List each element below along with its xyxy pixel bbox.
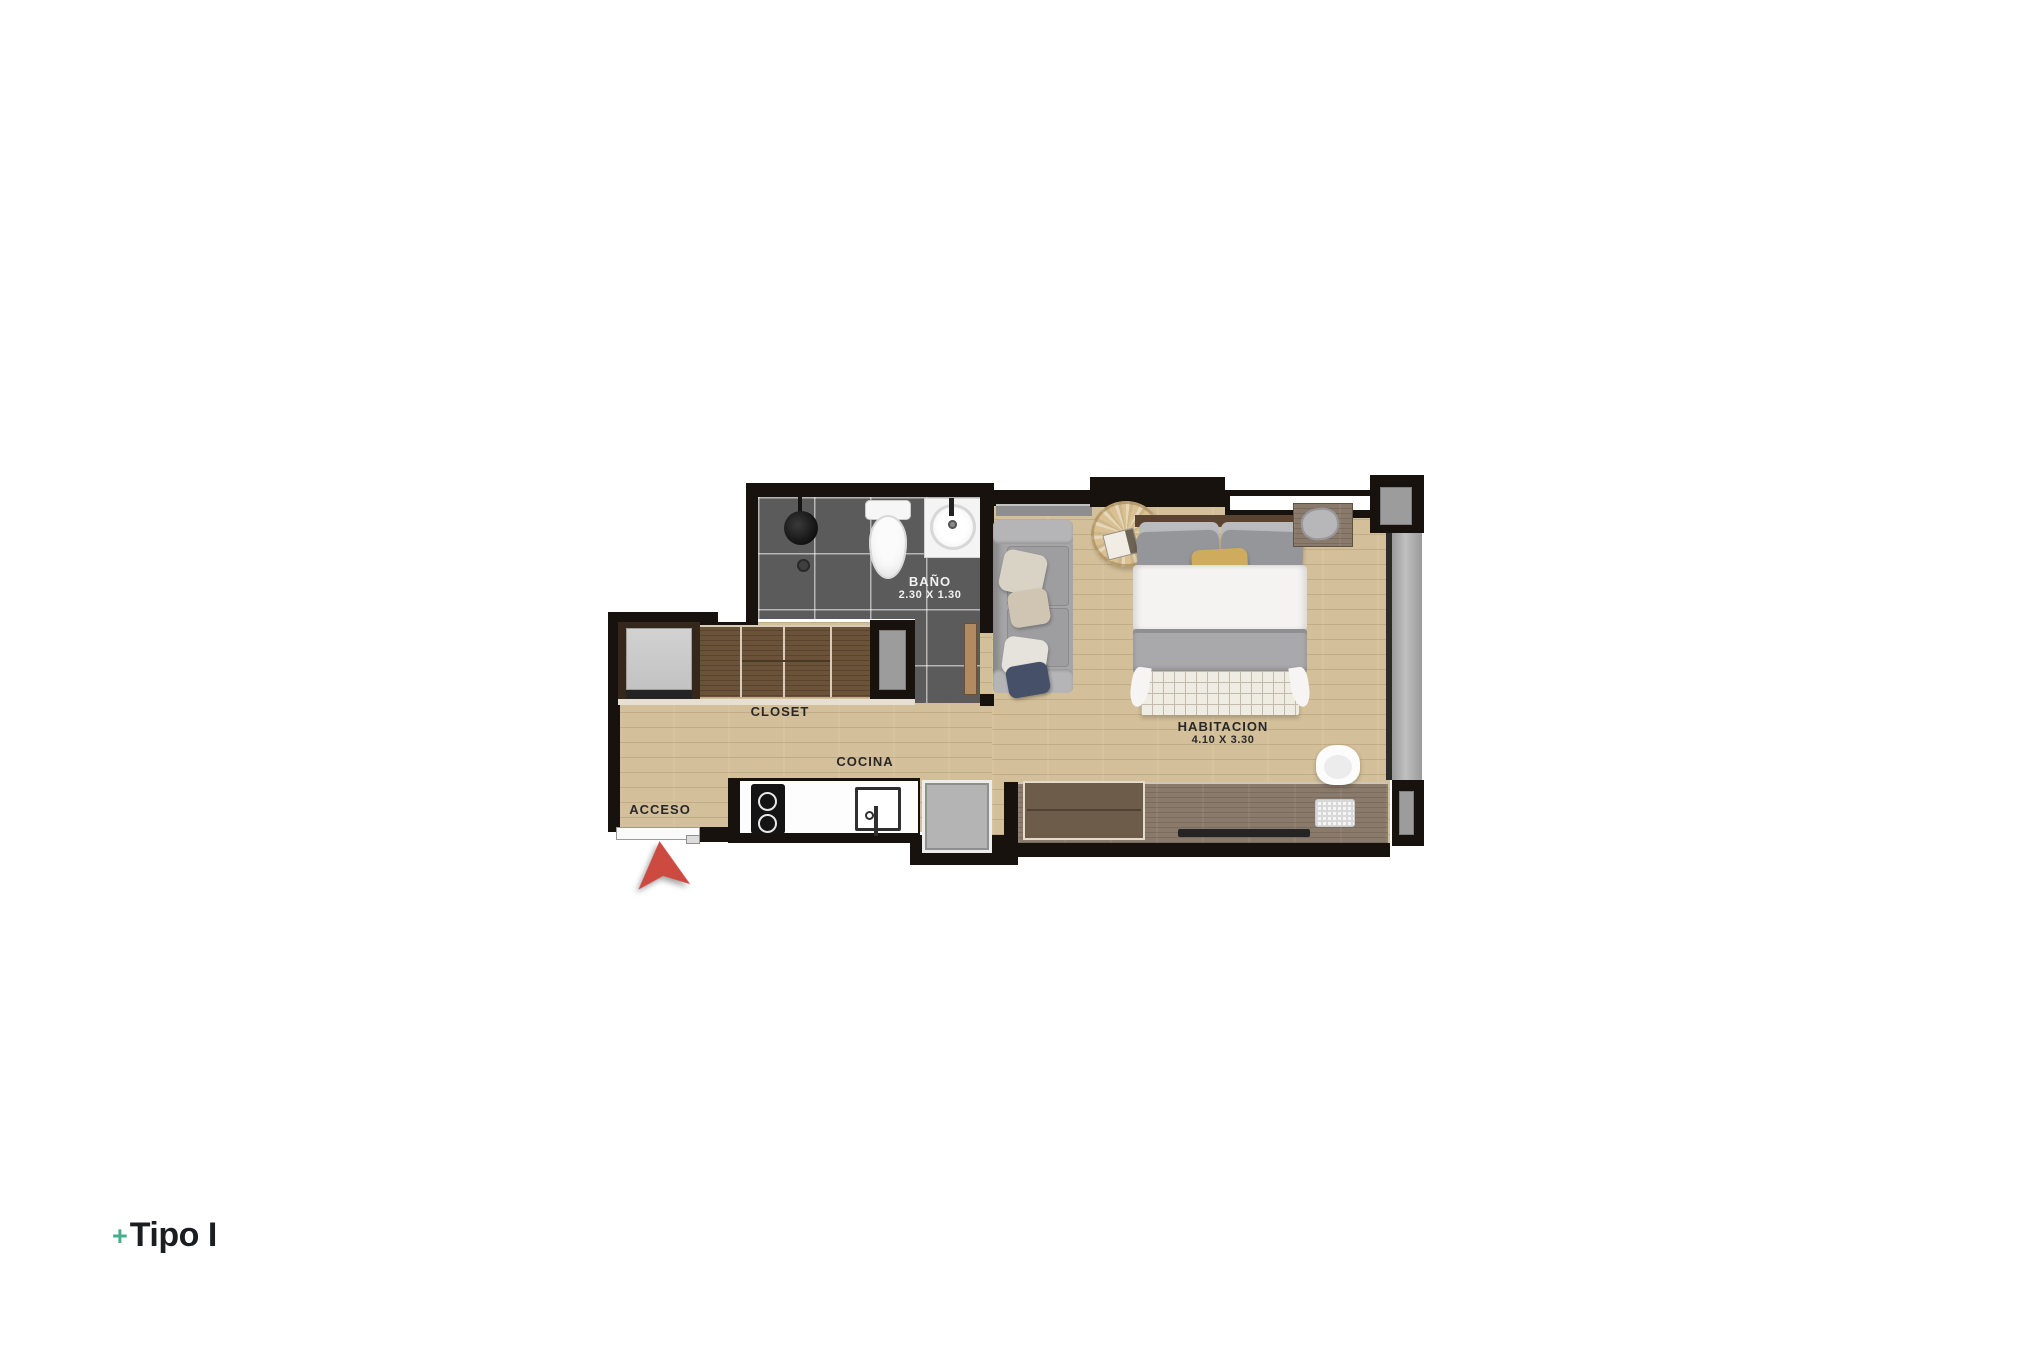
kitchen-name: COCINA <box>836 754 893 769</box>
window-right-glass <box>1392 533 1422 780</box>
window-top-left <box>996 504 1092 516</box>
bathroom-faucet-knob <box>948 520 957 529</box>
floor-plan: BAÑO 2.30 X 1.30 CLOSET COCINA ACCESO HA… <box>608 475 1424 890</box>
entry-arrow-icon <box>634 838 691 891</box>
washer-panel <box>626 690 692 699</box>
access-label: ACCESO <box>610 803 710 817</box>
wall-top-bump <box>1090 477 1225 507</box>
closet-label: CLOSET <box>730 705 830 719</box>
dishwasher <box>922 780 992 853</box>
bathroom-dim: 2.30 X 1.30 <box>870 589 990 601</box>
plus-icon: + <box>112 1221 128 1252</box>
bedroom-dim: 4.10 X 3.30 <box>1153 734 1293 746</box>
kitchen-faucet <box>874 806 878 836</box>
sofa <box>993 520 1073 693</box>
entry-door-handle <box>686 835 700 844</box>
closet-column-inset <box>879 630 906 690</box>
corner-top-right-inset <box>1380 487 1412 525</box>
shower-head <box>784 511 818 545</box>
blanket-fold <box>1133 629 1307 673</box>
kitchen-sink <box>855 787 901 831</box>
shower-drain <box>797 559 810 572</box>
bed <box>1133 515 1307 697</box>
bathroom-door-leaf <box>964 623 977 695</box>
closet-shelf-line <box>742 660 830 662</box>
corner-bottom-right-inset <box>1399 791 1414 835</box>
sofa-pillow-tan <box>1006 587 1051 629</box>
bathroom-label: BAÑO 2.30 X 1.30 <box>870 575 990 601</box>
laptop-bar <box>1178 829 1310 837</box>
keyboard <box>1315 799 1355 827</box>
desk-chair-seat <box>1324 755 1352 779</box>
washer <box>626 628 692 690</box>
wall-bottom-right <box>1012 843 1390 857</box>
sofa-armrest-top <box>993 520 1073 544</box>
stove-burner-1 <box>758 792 777 811</box>
unit-type-name: Tipo I <box>130 1216 217 1255</box>
wall-bathroom-top <box>746 483 994 497</box>
bedroom-label: HABITACION 4.10 X 3.30 <box>1153 720 1293 746</box>
dresser-drawer-line <box>1027 809 1141 811</box>
bathroom-name: BAÑO <box>909 574 951 589</box>
bathroom-faucet <box>949 498 954 516</box>
access-name: ACCESO <box>629 802 691 817</box>
stove-burner-2 <box>758 814 777 833</box>
kitchen-label: COCINA <box>815 755 915 769</box>
plaid-throw <box>1141 671 1299 715</box>
bedroom-name: HABITACION <box>1178 719 1269 734</box>
floor-plan-page: BAÑO 2.30 X 1.30 CLOSET COCINA ACCESO HA… <box>0 0 2032 1355</box>
kitchen-faucet-knob <box>865 811 874 820</box>
unit-type-caption: + Tipo I <box>112 1216 217 1255</box>
duvet <box>1133 565 1307 631</box>
closet-name: CLOSET <box>751 704 810 719</box>
wall-bathroom-right-stub <box>980 694 994 706</box>
wall-desk-column <box>1004 782 1018 843</box>
wall-bathroom-left <box>746 483 758 636</box>
closet-divider-3 <box>830 625 832 697</box>
